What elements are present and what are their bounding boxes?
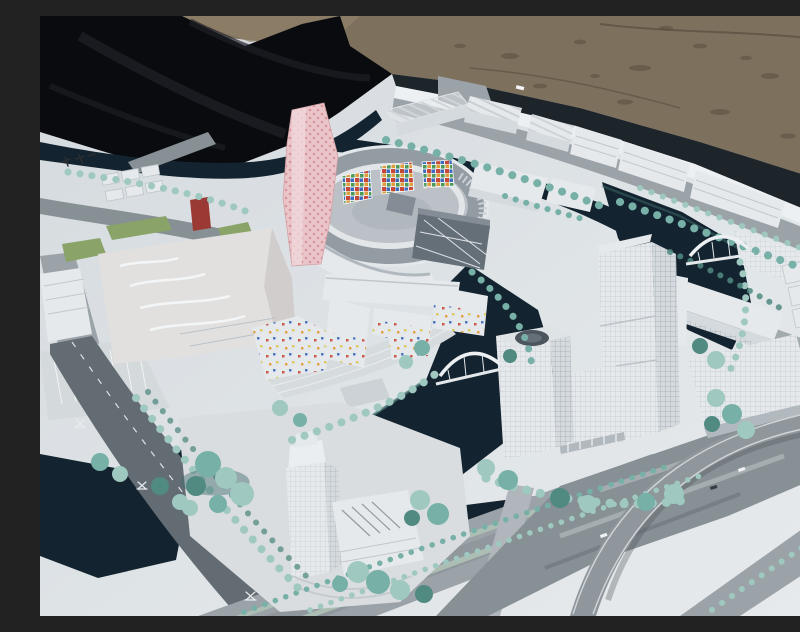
model-photo xyxy=(40,16,800,616)
photo-tint xyxy=(40,16,800,616)
photo-frame: Architectural scale model of a canal-sid… xyxy=(40,16,800,616)
